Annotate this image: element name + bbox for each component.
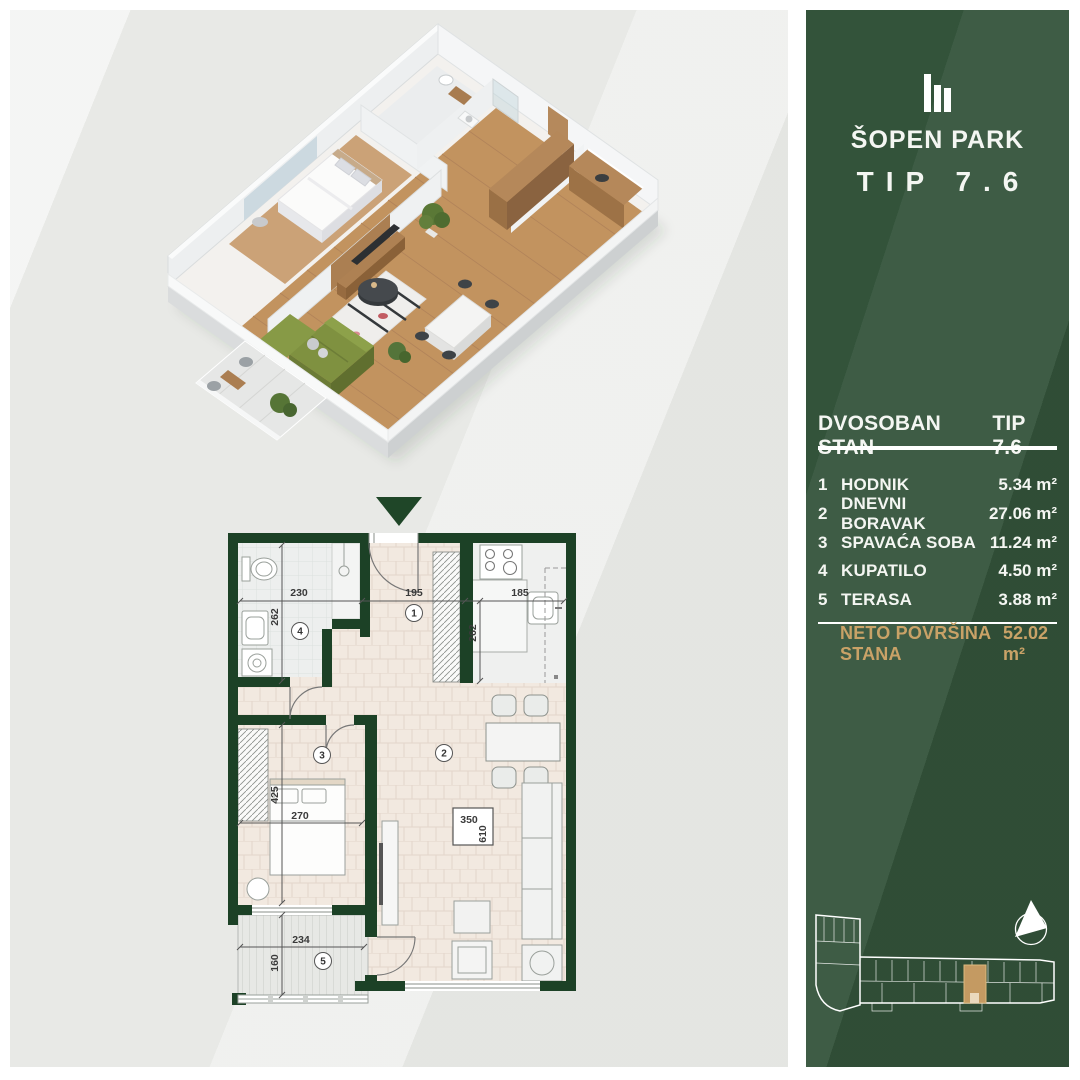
dim-tv-width: 350 — [460, 814, 478, 826]
building-site-plan — [810, 893, 1062, 1023]
room-number-living: 2 — [441, 749, 447, 760]
iso-nightstand — [252, 217, 268, 227]
room-list: 1 HODNIK 5.34 m² 2 DNEVNI BORAVAK 27.06 … — [818, 471, 1057, 614]
floor-plan: 230 195 185 262 262 270 425 234 160 350 … — [228, 533, 576, 1011]
brand-name: ŠOPEN PARK — [806, 126, 1069, 155]
room-row-spavaca-soba: 3 SPAVAĆA SOBA 11.24 m² — [818, 528, 1057, 557]
plan-tv-dim-box: 350 610 — [453, 808, 493, 845]
room-row-terasa: 5 TERASA 3.88 m² — [818, 586, 1057, 615]
room-row-dnevni-boravak: 2 DNEVNI BORAVAK 27.06 m² — [818, 500, 1057, 529]
plan-hall-wardrobe — [433, 552, 460, 682]
plan-bedroom-wardrobe — [238, 729, 268, 821]
plan-coffee-table — [452, 941, 492, 979]
down-arrow-icon — [376, 497, 422, 526]
spec-type: TIP 7.6 — [992, 412, 1057, 460]
total-value: 52.02 m² — [1003, 623, 1057, 665]
total-row: NETO POVRŠINA STANA 52.02 m² — [818, 630, 1057, 658]
room-number-terrace: 5 — [320, 957, 326, 968]
compass-icon — [1015, 900, 1047, 945]
spec-underline — [818, 446, 1057, 450]
render-panel: 230 195 185 262 262 270 425 234 160 350 … — [10, 10, 788, 1067]
page: 230 195 185 262 262 270 425 234 160 350 … — [0, 0, 1080, 1080]
info-panel: ŠOPEN PARK TIP 7.6 DVOSOBAN STAN TIP 7.6… — [806, 10, 1069, 1067]
dim-kitchen-height: 262 — [467, 624, 479, 642]
iso-apartment-render — [120, 18, 690, 488]
room-number-bedroom: 3 — [319, 751, 325, 762]
bar-chart-logo-icon — [806, 74, 1069, 112]
plan-floor-terrace — [238, 915, 368, 1003]
plan-pouf — [454, 901, 490, 933]
plan-sofa — [522, 783, 562, 981]
dim-bathroom-width: 230 — [290, 587, 308, 599]
spec-header: DVOSOBAN STAN TIP 7.6 — [818, 412, 1057, 460]
total-label: NETO POVRŠINA STANA — [840, 623, 1003, 665]
iso-coffee-table — [358, 278, 398, 306]
dim-terrace-height: 160 — [269, 954, 281, 972]
room-row-kupatilo: 4 KUPATILO 4.50 m² — [818, 557, 1057, 586]
room-number-hall: 1 — [411, 609, 417, 620]
dim-bedroom-width: 270 — [291, 810, 309, 822]
dim-bathroom-height: 262 — [269, 608, 281, 626]
dim-hall-width: 195 — [405, 587, 423, 599]
brand-type-label: TIP 7.6 — [806, 166, 1069, 198]
highlighted-unit — [964, 965, 986, 1003]
dim-terrace-width: 234 — [292, 934, 310, 946]
dim-kitchen-width: 185 — [511, 587, 529, 599]
dim-tv-height: 610 — [477, 825, 489, 843]
plan-tv-cabinet — [379, 821, 398, 925]
dim-bedroom-height: 425 — [269, 786, 281, 804]
spec-title: DVOSOBAN STAN — [818, 412, 992, 460]
room-number-bathroom: 4 — [297, 627, 303, 638]
